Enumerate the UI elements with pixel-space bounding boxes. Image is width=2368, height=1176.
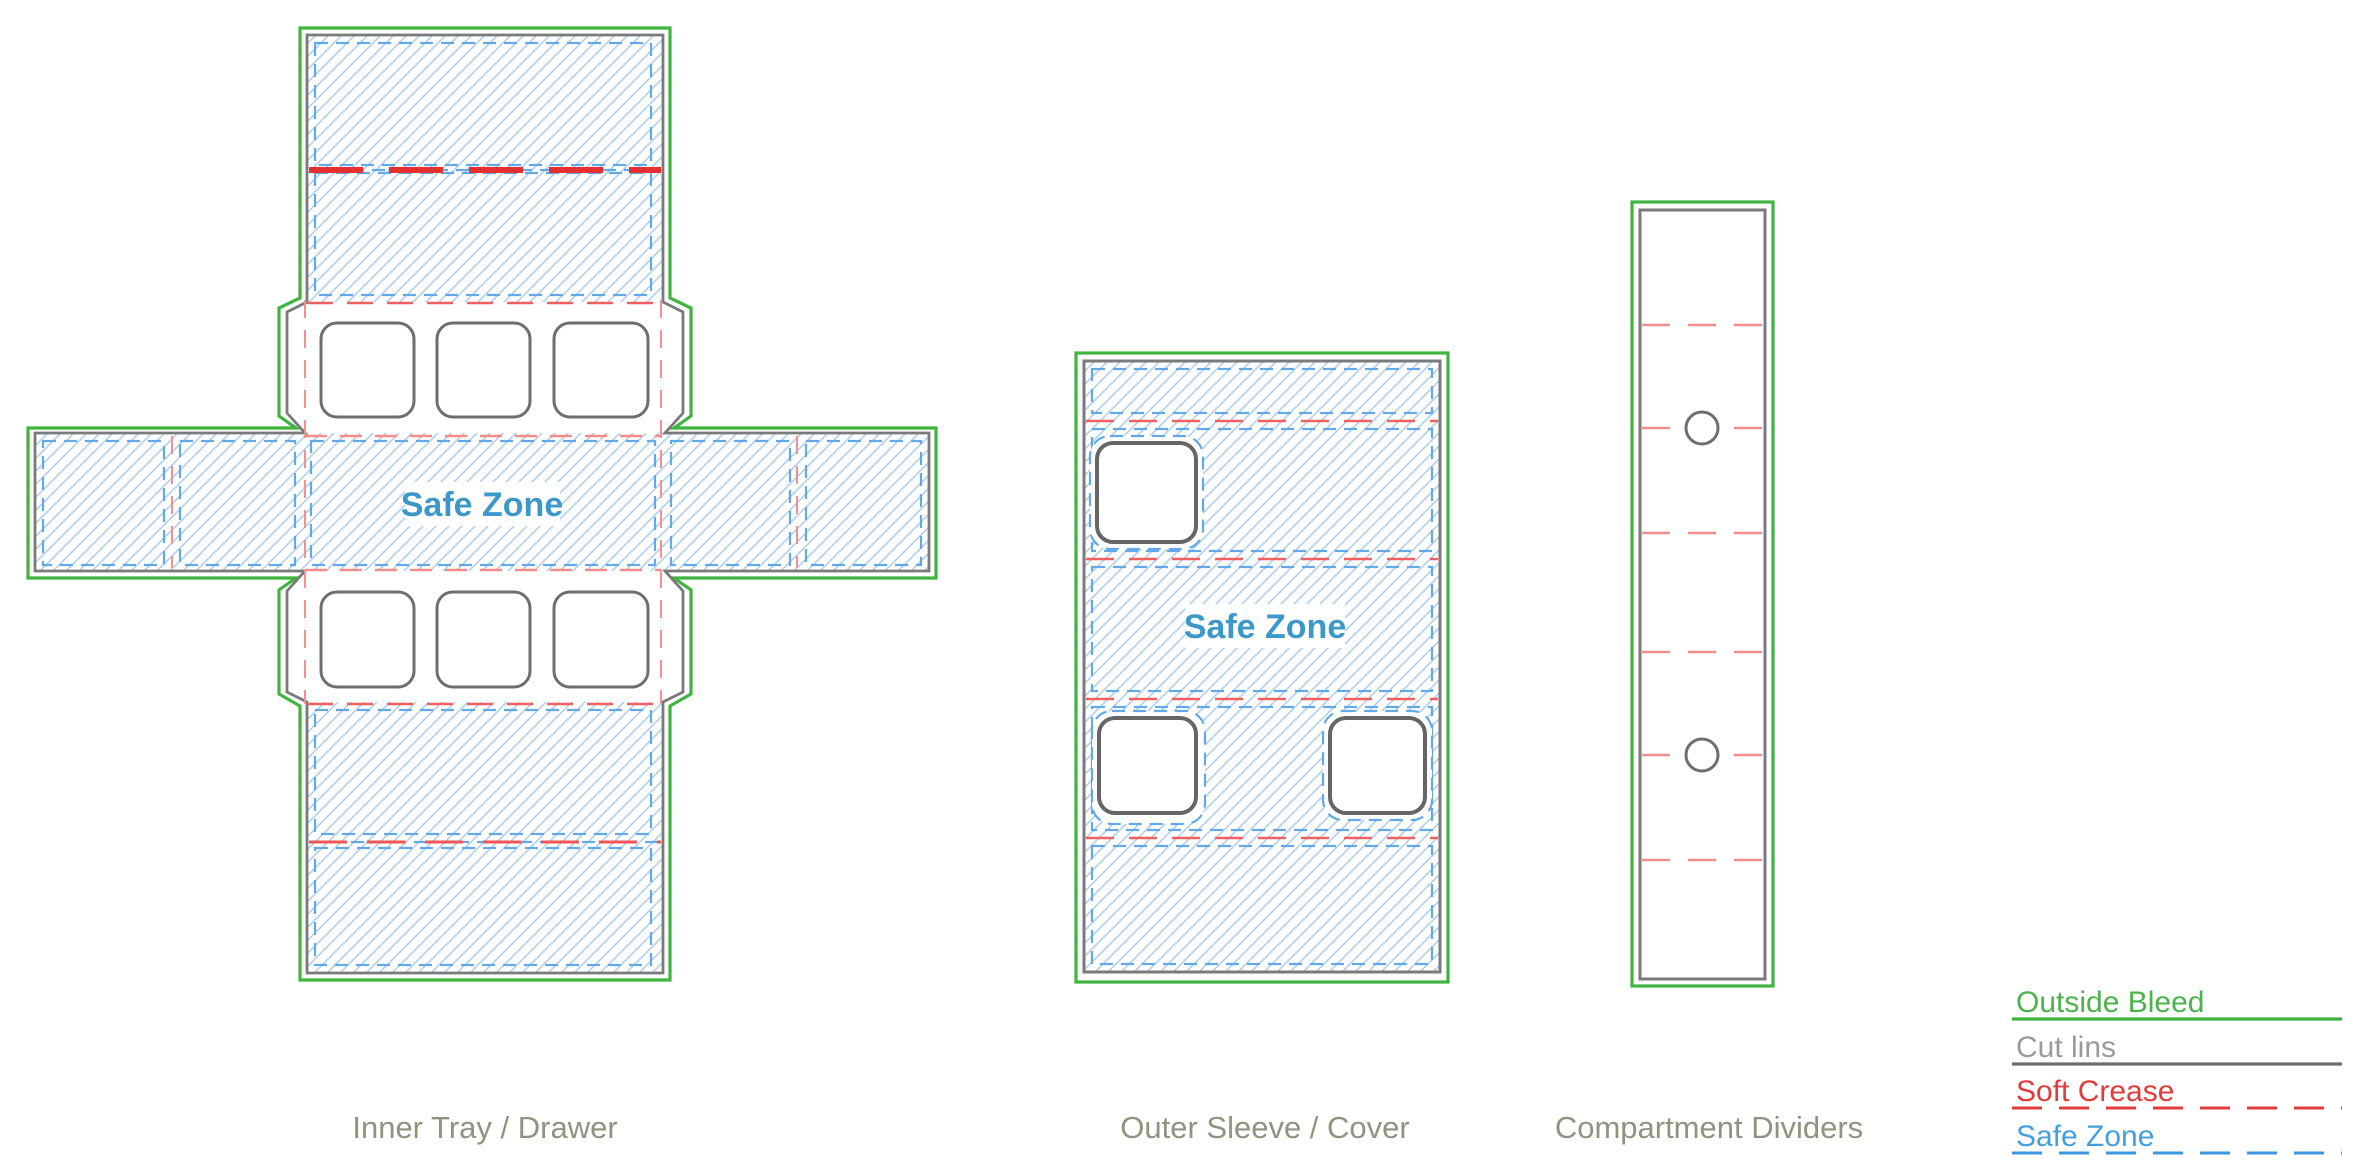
legend-outside-bleed-label: Outside Bleed <box>2016 986 2204 1019</box>
legend-safe-zone-label: Safe Zone <box>2016 1120 2154 1153</box>
tray-bottom-flap-hatch <box>307 702 663 973</box>
outer-sleeve-dieline: Safe Zone <box>1076 353 1448 982</box>
legend: Outside Bleed Cut lins Soft Crease Safe … <box>2012 986 2342 1153</box>
outer-sleeve-caption: Outer Sleeve / Cover <box>1120 1110 1409 1145</box>
tray-safezone-label: Safe Zone <box>401 486 563 524</box>
sleeve-safezone-label: Safe Zone <box>1184 608 1346 646</box>
inner-tray-caption: Inner Tray / Drawer <box>352 1110 617 1145</box>
dieline-diagram: Safe Zone Safe Zone <box>0 0 2368 1176</box>
captions: Inner Tray / Drawer Outer Sleeve / Cover… <box>352 1110 1863 1145</box>
dividers-caption: Compartment Dividers <box>1555 1110 1863 1145</box>
legend-soft-crease-label: Soft Crease <box>2016 1075 2174 1108</box>
legend-cut-line-label: Cut lins <box>2016 1031 2116 1064</box>
inner-tray-dieline: Safe Zone <box>28 28 936 980</box>
diagram-canvas: Safe Zone Safe Zone <box>0 0 2368 1176</box>
dividers-dieline <box>1632 202 1773 986</box>
